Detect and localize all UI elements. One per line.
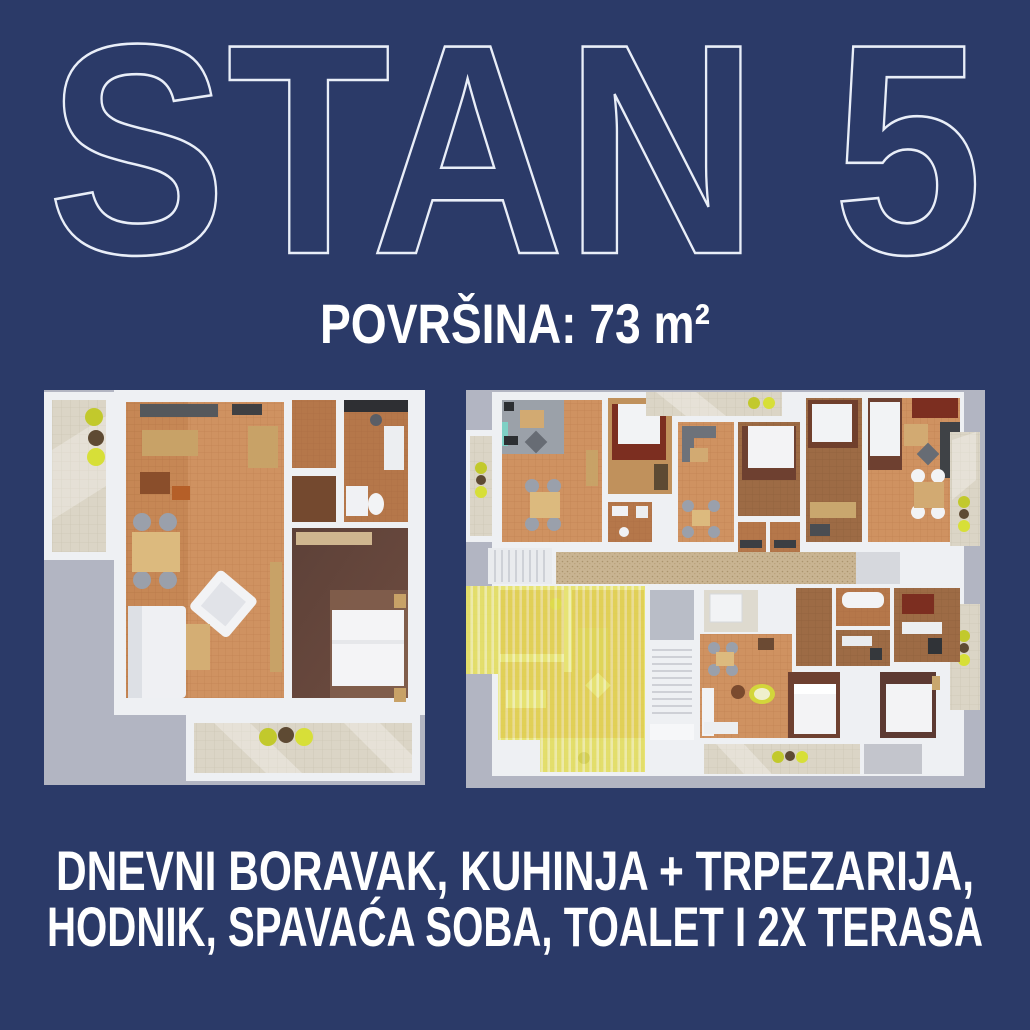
- unit-middle-a: [678, 422, 734, 542]
- toilet: [368, 493, 384, 515]
- staircase-left: [488, 548, 552, 584]
- terrace-bottom-right: [704, 744, 922, 774]
- unit-top-left: [502, 400, 602, 542]
- area-label: POVRŠINA: 73 m²: [320, 292, 710, 355]
- hallway: [292, 400, 336, 468]
- title-banner: STAN 5: [0, 0, 1030, 272]
- poster: STAN 5 POVRŠINA: 73 m²: [0, 0, 1030, 1030]
- balcony-top: [646, 392, 782, 416]
- floor-overview-image: [466, 390, 985, 788]
- terrace-bottom: [186, 715, 420, 781]
- page-title: STAN 5: [48, 0, 983, 272]
- bathroom: [344, 400, 408, 522]
- corridor: [556, 552, 900, 584]
- description-line-1: DNEVNI BORAVAK, KUHINJA + TRPEZARIJA,: [56, 839, 974, 902]
- bedroom: [292, 528, 408, 702]
- storage-room: [704, 590, 758, 632]
- balcony-right-upper: [950, 432, 980, 546]
- terrace-top-left: [44, 392, 114, 560]
- bathtub: [842, 592, 884, 608]
- tv-cabinet: [270, 562, 282, 672]
- description-block: DNEVNI BORAVAK, KUHINJA + TRPEZARIJA, HO…: [0, 833, 1030, 963]
- kitchen-counter: [140, 404, 218, 417]
- bed: [332, 610, 404, 686]
- unit-middle-c: [806, 398, 862, 542]
- description-line-2: HODNIK, SPAVAĆA SOBA, TOALET I 2X TERASA: [47, 895, 983, 958]
- living-room: [126, 402, 284, 698]
- staircase-center: [650, 590, 694, 740]
- wardrobe: [292, 476, 336, 522]
- dining-table: [132, 532, 180, 572]
- area-banner: POVRŠINA: 73 m²: [0, 283, 1030, 359]
- unit-center-bottom: [700, 634, 792, 738]
- apartment-floorplan-image: [44, 390, 425, 785]
- unit-top-right: [868, 398, 960, 542]
